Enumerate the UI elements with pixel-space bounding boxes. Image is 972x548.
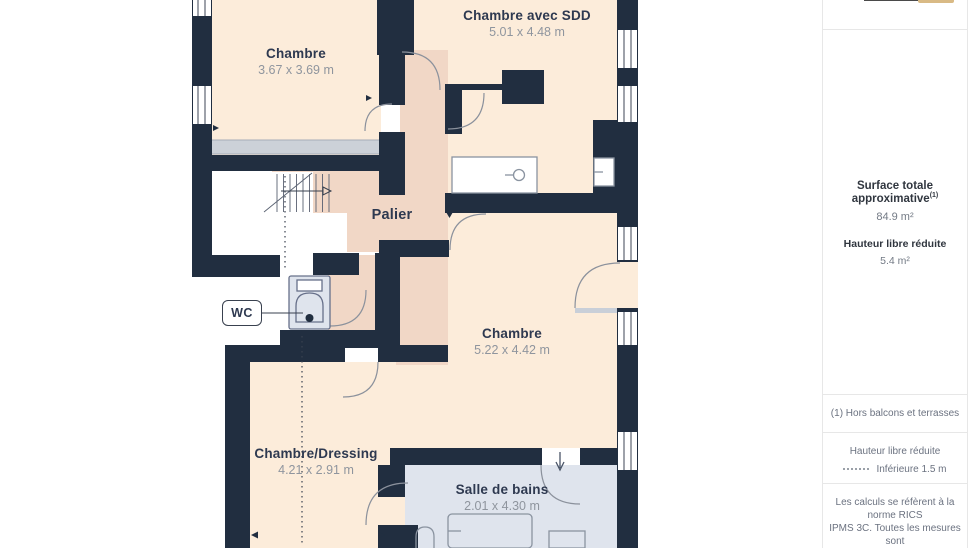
legend-value: Inférieure 1.5 m xyxy=(876,464,946,475)
note-line-1: Les calculs se réfèrent à la norme RICS xyxy=(823,496,967,522)
surface-value: 84.9 m² xyxy=(823,211,967,223)
note-line-2: IPMS 3C. Toutes les mesures sont xyxy=(823,522,967,548)
wc-callout: WC xyxy=(222,300,262,326)
cropped-text-remnant xyxy=(864,0,918,1)
footnote-text: (1) Hors balcons et terrasses xyxy=(831,408,959,419)
cropped-tab-underline[interactable] xyxy=(918,0,954,3)
door-threshold xyxy=(575,308,617,313)
reduced-height-value: 5.4 m² xyxy=(823,255,967,267)
sidebar-legend: Hauteur libre réduite Inférieure 1.5 m xyxy=(823,432,967,483)
sidebar-note: Les calculs se réfèrent à la norme RICS … xyxy=(823,483,967,548)
balcony-door-opening xyxy=(617,262,638,308)
legend-dash-icon xyxy=(843,468,869,470)
floorplan-viewer: Chambre 3.67 x 3.69 m Chambre avec SDD 5… xyxy=(0,0,972,548)
reduced-height-title: Hauteur libre réduite xyxy=(823,238,967,250)
wc-toilet xyxy=(289,276,330,329)
wc-callout-label: WC xyxy=(231,306,253,320)
sidebar-top-cropped xyxy=(823,0,967,29)
sidebar-measures: Surface totale approximative(1) 84.9 m² … xyxy=(823,29,967,394)
info-sidebar: Surface totale approximative(1) 84.9 m² … xyxy=(822,0,968,548)
surface-title: Surface totale approximative(1) xyxy=(823,180,967,205)
legend-title: Hauteur libre réduite xyxy=(823,446,967,457)
sidebar-footnote: (1) Hors balcons et terrasses xyxy=(823,394,967,432)
radiator-band xyxy=(211,140,383,154)
surface-footnote-marker: (1) xyxy=(930,192,939,199)
